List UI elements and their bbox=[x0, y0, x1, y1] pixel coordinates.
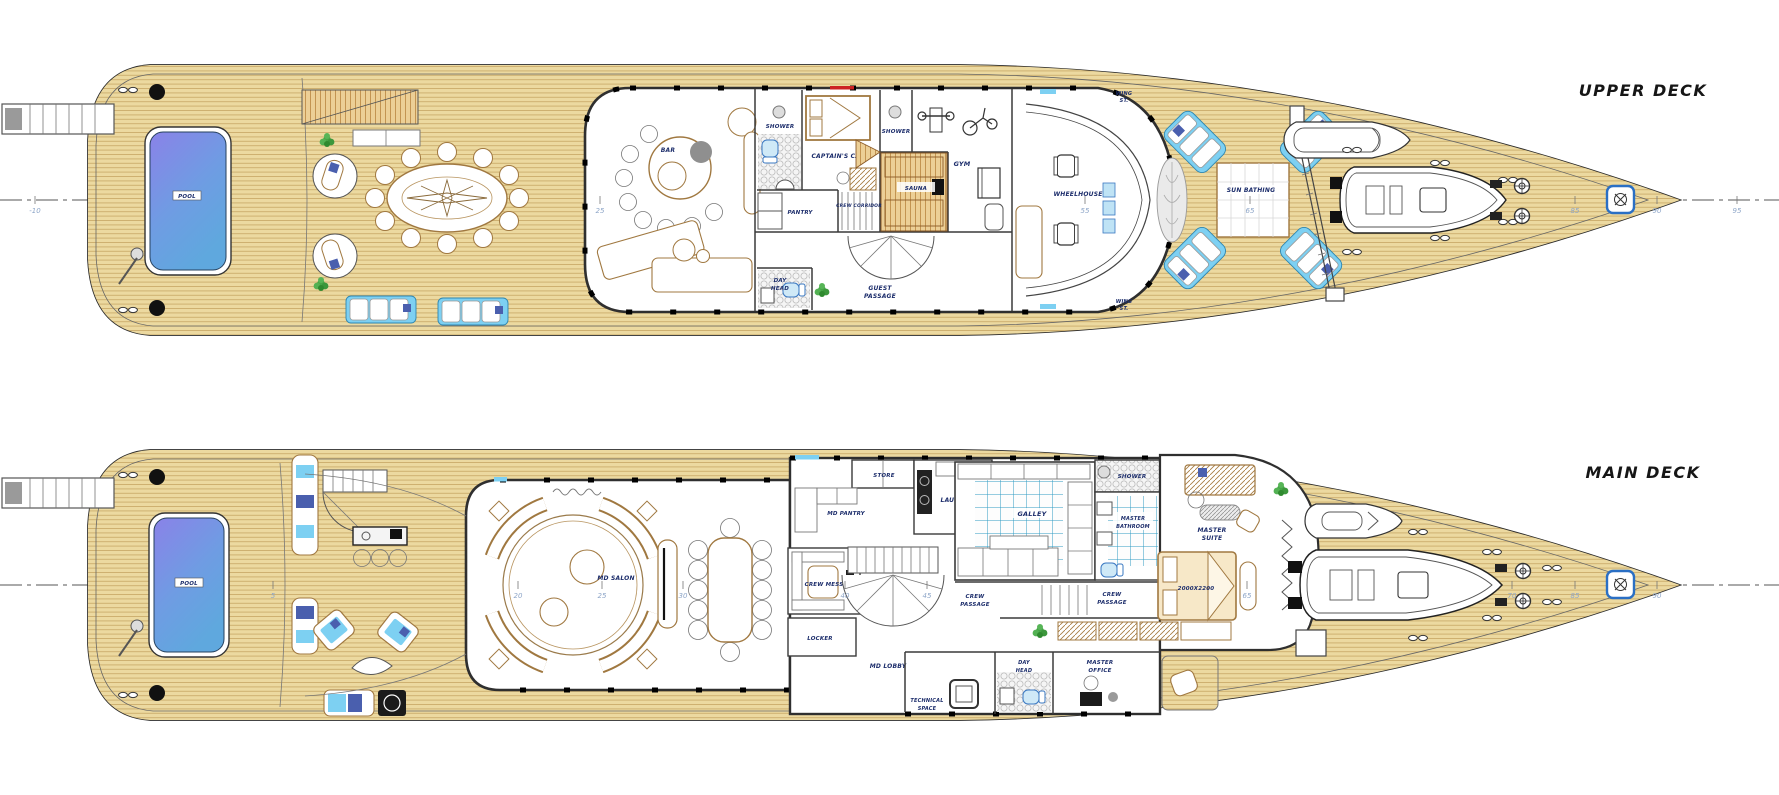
day-head-label-1: DAY bbox=[774, 278, 788, 284]
station-label: 5 bbox=[271, 592, 276, 600]
upper-deck-title: UPPER DECK bbox=[1579, 81, 1708, 100]
guest-passage-label-2: PASSAGE bbox=[864, 293, 897, 300]
technical-space-label-2: SPACE bbox=[918, 706, 937, 712]
sun-lounger bbox=[346, 296, 416, 323]
store: STORE bbox=[852, 460, 914, 488]
station-label: 65 bbox=[1246, 207, 1255, 215]
station-label: 40 bbox=[841, 592, 850, 600]
upper-pool-label: POOL bbox=[178, 194, 196, 200]
master-bathroom-label-1: MASTER bbox=[1121, 516, 1145, 522]
bed-bench bbox=[1240, 562, 1256, 610]
desk bbox=[850, 168, 876, 190]
sofa bbox=[652, 258, 752, 292]
station-label: 90 bbox=[1653, 207, 1662, 215]
station-label: 25 bbox=[596, 207, 605, 215]
helm-chair bbox=[1054, 155, 1078, 177]
md-lobby-label: MD LOBBY bbox=[870, 663, 907, 670]
locker: LOCKER bbox=[788, 618, 856, 656]
wing-station-stbd-label-1: WING bbox=[1116, 299, 1132, 305]
round-lounge-chair bbox=[313, 154, 357, 198]
gym-mat bbox=[985, 204, 1003, 230]
mooring-winch bbox=[1495, 564, 1507, 572]
wing-station-stbd-label-2: ST. bbox=[1120, 306, 1129, 312]
capstan bbox=[1515, 209, 1530, 224]
foredeck-hatch bbox=[1607, 186, 1634, 213]
main-pool-label: POOL bbox=[180, 581, 198, 587]
dumbwaiter bbox=[950, 680, 978, 708]
ga-plan-svg: POOL bbox=[0, 0, 1779, 795]
crew-passage-fwd-label-1: CREW bbox=[1103, 592, 1123, 598]
sink bbox=[1097, 502, 1112, 515]
sink bbox=[1097, 532, 1112, 545]
master-bathroom: MASTER BATHROOM bbox=[1095, 492, 1160, 580]
sun-lounger bbox=[438, 298, 508, 325]
shower-head-icon bbox=[889, 106, 901, 118]
wing-station-port-label-1: WING bbox=[1116, 91, 1132, 97]
bar-sink bbox=[690, 141, 712, 163]
helm-chair bbox=[1054, 223, 1078, 245]
station-label: 85 bbox=[1571, 592, 1580, 600]
fire-door-marker bbox=[830, 86, 854, 90]
day-head-label-1: DAY bbox=[1018, 660, 1031, 666]
outboard-engine bbox=[1288, 597, 1302, 609]
salon-door-marker bbox=[494, 477, 507, 482]
station-label: 65 bbox=[1243, 592, 1252, 600]
upper-passerelle bbox=[2, 104, 114, 134]
station-label: 45 bbox=[923, 592, 932, 600]
station-label: 90 bbox=[1653, 592, 1662, 600]
crew-passage-aft-label-1: CREW bbox=[966, 594, 986, 600]
main-pool: POOL bbox=[149, 513, 229, 657]
galley-label: GALLEY bbox=[1018, 510, 1048, 518]
station-label: 85 bbox=[1571, 207, 1580, 215]
toilet bbox=[1023, 690, 1045, 704]
wheelhouse-door-port bbox=[1040, 89, 1056, 94]
upper-day-head: DAY HEAD bbox=[758, 270, 810, 308]
shower-head-icon bbox=[773, 106, 785, 118]
ga-plan-canvas: POOL bbox=[0, 0, 1779, 795]
bar-label: BAR bbox=[661, 147, 676, 154]
crew-corridor-label: CREW CORRIDOR bbox=[836, 203, 882, 209]
salon-round-table bbox=[540, 598, 568, 626]
wheelhouse-door-stbd bbox=[1040, 304, 1056, 309]
day-head-label-2: HEAD bbox=[771, 286, 789, 292]
shower-port-label: SHOWER bbox=[766, 124, 795, 130]
bed-size-label: 2000X2200 bbox=[1178, 586, 1215, 592]
master-suite-label-2: SUITE bbox=[1202, 535, 1223, 542]
master-bathroom-label-2: BATHROOM bbox=[1116, 524, 1150, 530]
crew-passage-aft-label-2: PASSAGE bbox=[960, 602, 989, 608]
round-lounge-chair bbox=[313, 234, 357, 278]
master-suite-label-1: MASTER bbox=[1198, 527, 1227, 534]
mooring-winch bbox=[1495, 598, 1507, 606]
piano bbox=[658, 540, 677, 628]
shower-stbd-label: SHOWER bbox=[882, 129, 911, 135]
outboard-engine bbox=[1330, 177, 1342, 189]
galley: GALLEY bbox=[955, 462, 1095, 580]
main-aft-bench-seating bbox=[292, 455, 318, 654]
wheelhouse-sofa bbox=[1016, 206, 1042, 278]
main-passerelle bbox=[2, 478, 114, 508]
capstan bbox=[1516, 564, 1531, 579]
wardrobes bbox=[1058, 622, 1231, 640]
station-label: 70 bbox=[1508, 592, 1517, 600]
pantry-label: PANTRY bbox=[787, 210, 813, 216]
office-terrace bbox=[1162, 656, 1218, 710]
technical-space-label-1: TECHNICAL bbox=[910, 698, 943, 704]
master-shower-label: SHOWER bbox=[1118, 474, 1147, 480]
upper-pool: POOL bbox=[145, 127, 231, 275]
capstan-drum bbox=[149, 685, 165, 701]
main-deck-title: MAIN DECK bbox=[1585, 463, 1700, 482]
toilet bbox=[1101, 563, 1123, 577]
rib-console bbox=[1398, 572, 1428, 598]
station-label: 30 bbox=[679, 592, 688, 600]
toilet bbox=[762, 140, 778, 163]
master-suite: 2000X2200 MASTER SUITE bbox=[1158, 455, 1319, 650]
master-office-label-2: OFFICE bbox=[1088, 668, 1111, 674]
capstan-drum bbox=[149, 84, 165, 100]
outboard-engine bbox=[1330, 211, 1342, 223]
shower-head-icon bbox=[1098, 466, 1110, 478]
office-desk bbox=[1080, 692, 1102, 706]
outboard-engine bbox=[1288, 561, 1302, 573]
foredeck-hatch bbox=[1607, 571, 1634, 598]
sauna-label: SAUNA bbox=[905, 186, 927, 192]
capstan-drum bbox=[149, 469, 165, 485]
davit-base bbox=[1296, 630, 1326, 656]
guest-passage-label-1: GUEST bbox=[868, 285, 892, 292]
mooring-winch bbox=[1490, 212, 1502, 220]
deck-grill-console bbox=[378, 690, 406, 716]
gym-label: GYM bbox=[954, 160, 971, 168]
station-label: 20 bbox=[514, 592, 523, 600]
sun-bathing-label: SUN BATHING bbox=[1227, 187, 1275, 194]
upper-deck-plan: POOL bbox=[0, 65, 1779, 335]
station-label: 55 bbox=[1081, 207, 1090, 215]
station-label: 25 bbox=[598, 592, 607, 600]
side-door-marker bbox=[795, 455, 819, 460]
wheelhouse-label: WHEELHOUSE bbox=[1053, 191, 1103, 198]
master-shower: SHOWER bbox=[1095, 460, 1160, 492]
store-label: STORE bbox=[873, 473, 894, 479]
station-label: -10 bbox=[29, 207, 41, 215]
wing-station-port-label-2: ST. bbox=[1120, 98, 1129, 104]
rib-console bbox=[1420, 188, 1446, 212]
rug bbox=[1200, 505, 1240, 520]
upper-sideboard bbox=[353, 130, 420, 146]
capstan bbox=[1516, 594, 1531, 609]
office-stool bbox=[1108, 692, 1118, 702]
md-salon-label: MD SALON bbox=[597, 575, 634, 582]
day-head-label-2: HEAD bbox=[1016, 668, 1032, 674]
main-deck-plan: POOL bbox=[0, 450, 1779, 720]
master-office-label-1: MASTER bbox=[1087, 660, 1114, 666]
upper-aft-stairs bbox=[302, 90, 418, 124]
sink bbox=[1000, 688, 1014, 704]
capstan bbox=[1515, 179, 1530, 194]
capstan-drum bbox=[149, 300, 165, 316]
crew-passage-fwd-label-2: PASSAGE bbox=[1097, 600, 1126, 606]
crew-mess-label: CREW MESS bbox=[805, 582, 844, 588]
locker-label: LOCKER bbox=[807, 636, 832, 642]
mooring-winch bbox=[1490, 180, 1502, 188]
galley-island bbox=[990, 536, 1048, 549]
md-pantry-label: MD PANTRY bbox=[827, 511, 865, 517]
station-label: 95 bbox=[1733, 207, 1742, 215]
